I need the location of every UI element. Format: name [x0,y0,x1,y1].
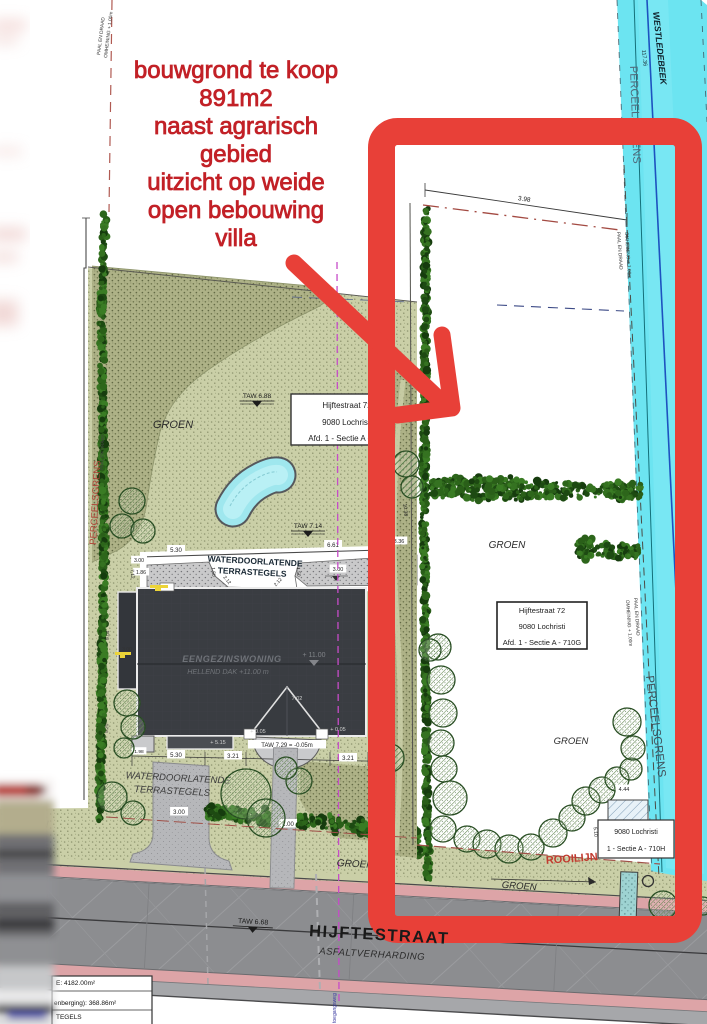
svg-text:E: 4182.00m²: E: 4182.00m² [56,980,96,987]
svg-text:4.44: 4.44 [619,787,630,793]
svg-text:GROEN: GROEN [489,540,526,551]
svg-text:gebied: gebied [200,141,272,168]
svg-text:bouwgrond te koop: bouwgrond te koop [134,57,338,84]
svg-text:5.30: 5.30 [170,548,182,554]
svg-text:enberging): 368.86m²: enberging): 368.86m² [54,1000,117,1007]
svg-text:3.21: 3.21 [227,754,239,760]
svg-text:1 - Sectie A - 710H: 1 - Sectie A - 710H [607,846,665,853]
svg-text:1.86: 1.86 [136,570,146,576]
svg-text:EENGEZINSWONING: EENGEZINSWONING [182,654,281,664]
svg-text:1.50: 1.50 [210,567,216,577]
svg-text:TEGELS: TEGELS [56,1014,82,1021]
svg-text:+ 5.15: + 5.15 [210,740,225,746]
svg-text:3.00: 3.00 [173,810,185,816]
svg-text:Hijftestraat 72: Hijftestraat 72 [519,606,565,615]
svg-text:10.38: 10.38 [401,503,408,516]
svg-text:GROEN: GROEN [153,419,193,431]
svg-text:9.04: 9.04 [105,630,111,640]
svg-text:7.02: 7.02 [292,696,303,702]
svg-text:5.30: 5.30 [170,753,182,759]
svg-text:uitzicht op weide: uitzicht op weide [147,169,324,196]
svg-text:1.50: 1.50 [295,567,301,577]
svg-text:+ 0.05: + 0.05 [250,729,265,735]
svg-text:villa: villa [215,225,257,252]
svg-text:3.36: 3.36 [394,539,405,545]
svg-text:1.98: 1.98 [134,749,144,755]
svg-text:TAW 7.14: TAW 7.14 [294,523,323,530]
svg-text:+ 11.00: + 11.00 [302,652,325,659]
svg-text:3.00: 3.00 [134,558,144,564]
svg-text:7.12: 7.12 [129,569,135,579]
svg-text:naast agrarisch: naast agrarisch [154,113,318,140]
svg-text:toegangsweg: toegangsweg [332,993,338,1023]
svg-text:GROEN: GROEN [554,736,589,747]
svg-text:TAW 6.88: TAW 6.88 [243,393,272,400]
svg-text:9080 Lochristi: 9080 Lochristi [519,622,566,631]
svg-text:891m2: 891m2 [199,85,272,112]
svg-text:9080 Lochristi: 9080 Lochristi [322,418,372,427]
svg-text:Afd. 1 - Sectie A - 710G: Afd. 1 - Sectie A - 710G [503,638,582,647]
svg-text:Hijftestraat 72: Hijftestraat 72 [322,401,372,410]
svg-text:3.21: 3.21 [342,756,354,762]
svg-text:open bebouwing: open bebouwing [148,197,324,224]
svg-text:9080 Lochristi: 9080 Lochristi [614,829,658,836]
svg-text:3.00: 3.00 [122,647,132,653]
svg-text:HELLEND DAK +11.00 m: HELLEND DAK +11.00 m [187,667,269,676]
